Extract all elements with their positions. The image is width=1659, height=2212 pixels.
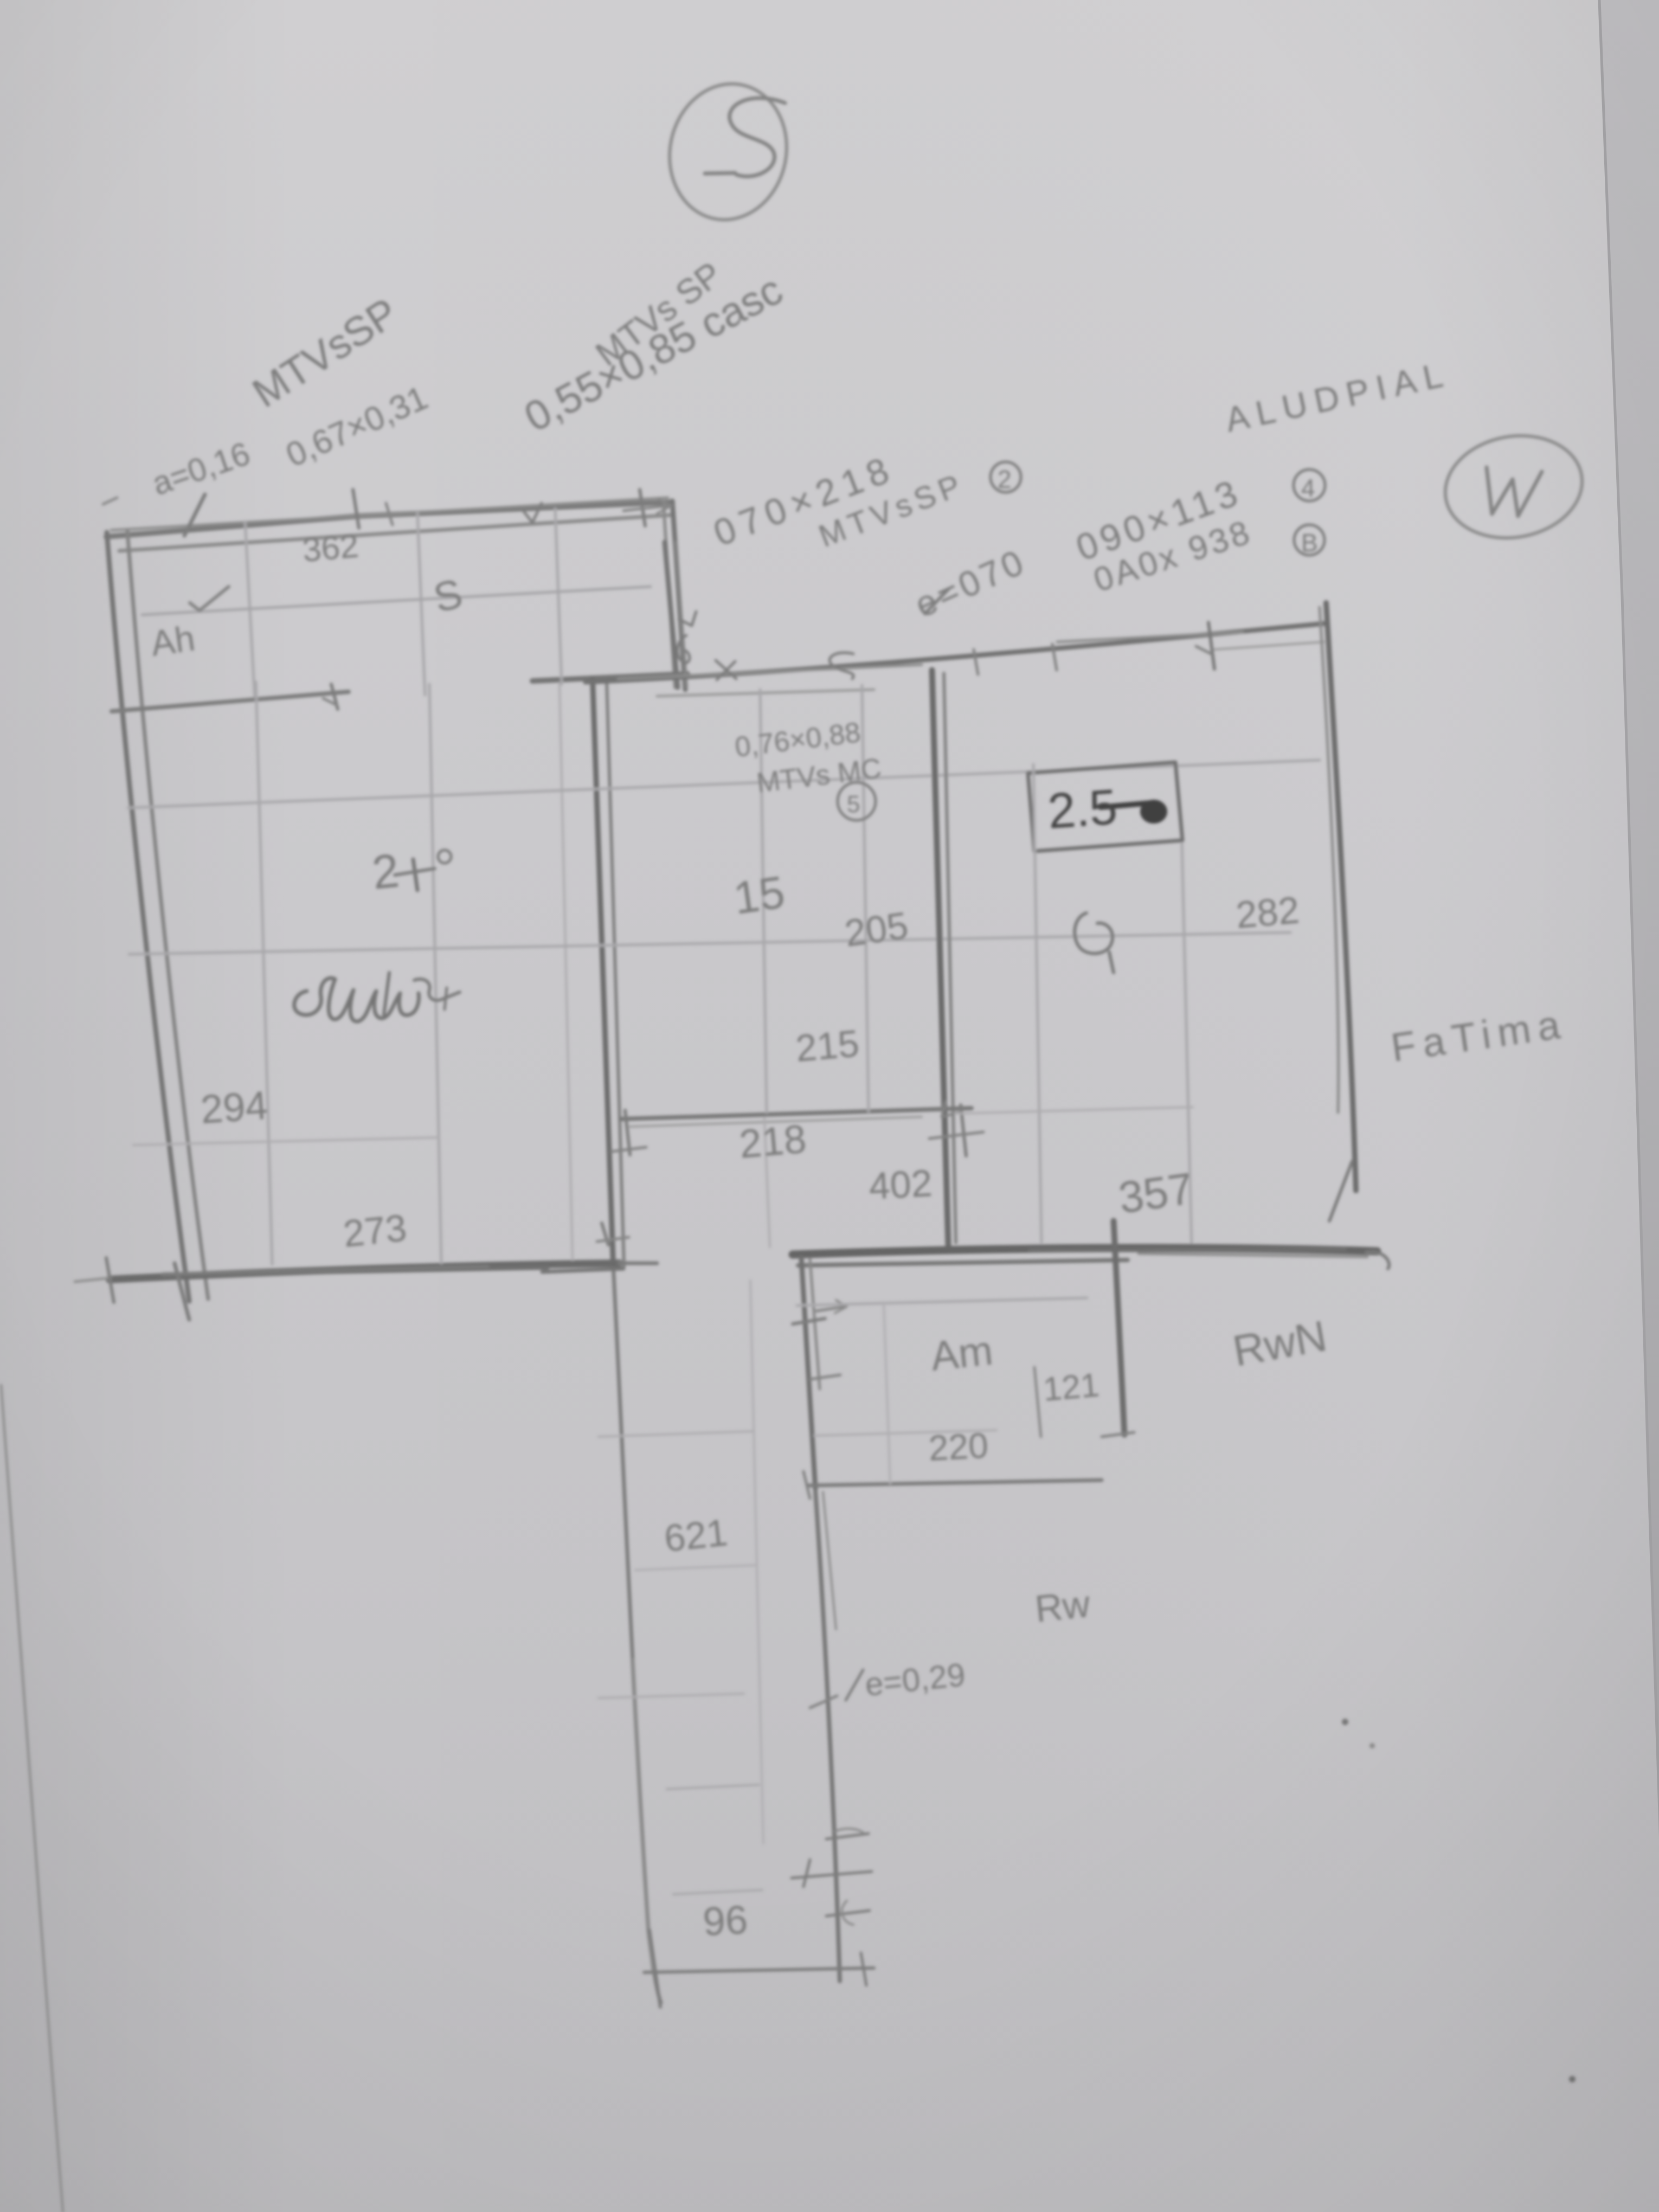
svg-text:Am: Am <box>929 1327 995 1379</box>
svg-text:15: 15 <box>730 866 788 924</box>
svg-text:2: 2 <box>998 465 1012 493</box>
svg-text:402: 402 <box>868 1162 934 1207</box>
svg-text:215: 215 <box>794 1022 861 1070</box>
svg-text:96: 96 <box>702 1897 749 1944</box>
svg-text:205: 205 <box>842 904 911 954</box>
svg-text:4: 4 <box>1301 474 1315 502</box>
svg-text:362: 362 <box>301 527 360 569</box>
svg-text:273: 273 <box>341 1206 408 1255</box>
svg-text:Rw: Rw <box>1033 1583 1092 1630</box>
svg-text:Ah: Ah <box>149 618 197 664</box>
svg-text:B: B <box>1301 529 1318 557</box>
svg-text:357: 357 <box>1116 1164 1196 1223</box>
svg-text:121: 121 <box>1041 1366 1101 1409</box>
svg-text:294: 294 <box>199 1083 269 1132</box>
svg-text:2: 2 <box>370 843 402 899</box>
svg-text:220: 220 <box>928 1425 989 1468</box>
svg-text:621: 621 <box>662 1511 729 1560</box>
svg-text:2.5: 2.5 <box>1046 779 1119 839</box>
svg-text:282: 282 <box>1234 889 1301 936</box>
svg-text:218: 218 <box>737 1116 808 1166</box>
svg-text:5: 5 <box>847 791 860 818</box>
